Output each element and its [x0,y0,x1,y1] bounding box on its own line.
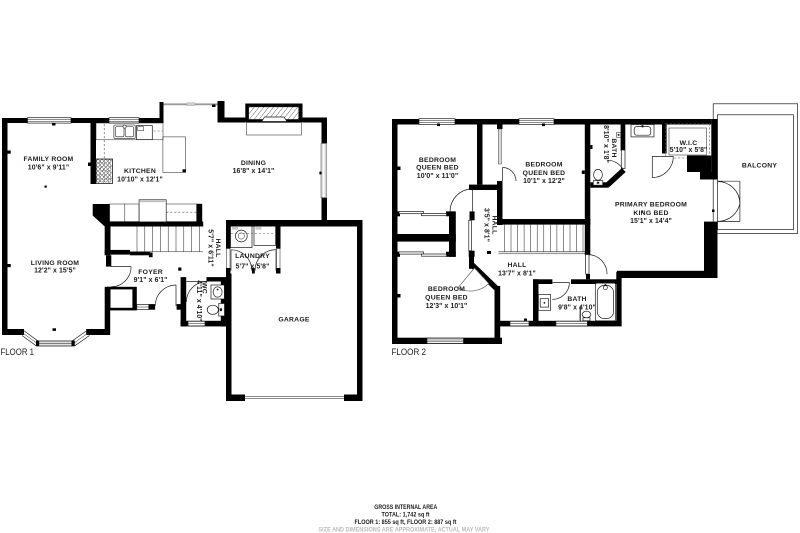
svg-text:16'8" x 14'1": 16'8" x 14'1" [233,168,275,175]
svg-text:10'1" x 12'2": 10'1" x 12'2" [523,178,565,185]
svg-text:FLOOR 1: FLOOR 1 [1,347,35,357]
svg-text:GARAGE: GARAGE [278,317,310,324]
svg-text:8'10" x 1'8": 8'10" x 1'8" [602,125,609,163]
svg-text:5'7" x 6'11": 5'7" x 6'11" [207,229,214,266]
svg-text:PRIMARY BEDROOM: PRIMARY BEDROOM [615,202,687,209]
svg-text:LAUNDRY: LAUNDRY [235,253,270,260]
svg-text:GROSS INTERNAL AREA: GROSS INTERNAL AREA [374,504,437,511]
svg-text:SIZE AND DIMENSIONS ARE APPROX: SIZE AND DIMENSIONS ARE APPROXIMATE, ACT… [319,527,490,533]
svg-text:BALCONY: BALCONY [742,162,778,169]
svg-text:4'11" x 4'10": 4'11" x 4'10" [195,280,202,321]
svg-text:FLOOR 1: 855 sq ft, FLOOR 2: 8: FLOOR 1: 855 sq ft, FLOOR 2: 887 sq ft [355,519,458,526]
svg-text:BEDROOM: BEDROOM [428,286,465,293]
svg-text:QUEEN BED: QUEEN BED [523,170,566,177]
svg-text:3'5" x 8'1": 3'5" x 8'1" [483,208,490,242]
svg-text:13'7" x 8'1": 13'7" x 8'1" [498,271,536,278]
svg-text:QUEEN BED: QUEEN BED [416,165,459,172]
svg-text:HALL: HALL [507,262,526,269]
svg-text:QUEEN BED: QUEEN BED [425,295,468,302]
svg-text:15'1" x 14'4": 15'1" x 14'4" [630,218,672,225]
svg-text:10'10" x 12'1": 10'10" x 12'1" [117,176,163,183]
svg-text:12'2" x 15'5": 12'2" x 15'5" [34,268,76,275]
svg-text:KITCHEN: KITCHEN [124,168,156,175]
svg-text:TOTAL: 1,742 sq ft: TOTAL: 1,742 sq ft [382,512,431,519]
svg-text:5'7" x 5'8": 5'7" x 5'8" [236,263,270,270]
svg-text:W.I.C: W.I.C [680,140,698,147]
svg-text:9'1" x 6'1": 9'1" x 6'1" [134,277,168,284]
svg-text:DINING: DINING [241,160,266,167]
svg-text:5'10" x 5'8": 5'10" x 5'8" [670,147,708,154]
svg-text:12'3" x 10'1": 12'3" x 10'1" [426,303,468,310]
svg-text:HALL: HALL [491,215,498,234]
svg-text:KING BED: KING BED [633,210,668,217]
svg-text:BEDROOM: BEDROOM [419,157,456,164]
svg-text:HALL: HALL [214,238,221,257]
svg-text:FAMILY ROOM: FAMILY ROOM [24,156,74,163]
svg-text:FOYER: FOYER [138,269,163,276]
svg-text:BATH: BATH [610,138,617,157]
svg-text:10'0" x 11'0": 10'0" x 11'0" [417,173,458,180]
svg-text:FLOOR 2: FLOOR 2 [392,347,427,357]
svg-text:9'8" x 4'10": 9'8" x 4'10" [558,305,596,312]
svg-text:BEDROOM: BEDROOM [525,162,562,169]
svg-text:BATH: BATH [567,296,586,303]
svg-text:LIVING ROOM: LIVING ROOM [31,260,80,267]
svg-text:10'6" x 9'11": 10'6" x 9'11" [28,165,69,172]
